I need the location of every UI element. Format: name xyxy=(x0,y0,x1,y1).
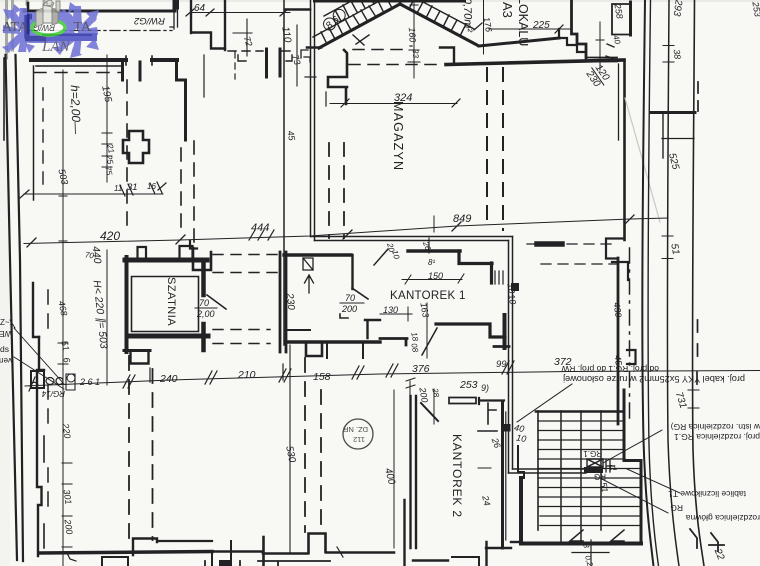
svg-text:51: 51 xyxy=(59,340,71,352)
svg-text:proj. kabel YKY 5x25mm2 w rurz: proj. kabel YKY 5x25mm2 w rurze osłonowe… xyxy=(563,374,745,384)
svg-text:tablice licznikowe T1: tablice licznikowe T1 xyxy=(668,489,746,499)
svg-text:253: 253 xyxy=(459,379,478,391)
svg-text:158: 158 xyxy=(313,371,331,383)
svg-text:Z~1: Z~1 xyxy=(0,318,15,327)
svg-text:293: 293 xyxy=(671,0,684,17)
svg-text:849: 849 xyxy=(453,213,471,225)
svg-text:420: 420 xyxy=(100,229,120,243)
svg-text:KANTOREK 1: KANTOREK 1 xyxy=(390,290,466,302)
svg-text:ATA: ATA xyxy=(2,20,29,35)
svg-text:38: 38 xyxy=(672,49,683,60)
svg-text:70: 70 xyxy=(199,298,209,308)
svg-text:T1: T1 xyxy=(609,463,617,470)
svg-text:0,70m²: 0,70m² xyxy=(461,0,474,33)
svg-text:210: 210 xyxy=(237,369,256,381)
svg-text:430: 430 xyxy=(612,302,624,318)
svg-text:160: 160 xyxy=(407,27,418,43)
svg-text:WEI: WEI xyxy=(0,329,12,338)
svg-text:70: 70 xyxy=(345,293,355,303)
svg-text:10: 10 xyxy=(505,283,517,295)
svg-text:ven: ven xyxy=(0,356,12,365)
svg-text:RG.1: RG.1 xyxy=(583,449,602,458)
svg-text:112: 112 xyxy=(353,435,365,444)
svg-text:70: 70 xyxy=(84,250,95,260)
svg-text:2 6 1: 2 6 1 xyxy=(79,377,100,387)
svg-text:2,00: 2,00 xyxy=(196,309,215,319)
svg-text:130: 130 xyxy=(383,305,398,315)
svg-text:TA: TA xyxy=(74,20,92,35)
svg-text:w istn. rozdzielnica RG): w istn. rozdzielnica RG) xyxy=(671,422,760,432)
svg-text:LAN: LAN xyxy=(41,39,71,55)
svg-text:RW/G2: RW/G2 xyxy=(133,15,165,26)
svg-text:RG/14: RG/14 xyxy=(41,389,65,398)
svg-text:225: 225 xyxy=(532,20,550,31)
svg-text:376: 376 xyxy=(412,363,430,375)
svg-text:230: 230 xyxy=(284,292,297,311)
svg-text:MAGAZYN: MAGAZYN xyxy=(391,101,405,171)
svg-text:KANTOREK 2: KANTOREK 2 xyxy=(450,434,464,518)
svg-text:444: 444 xyxy=(251,222,269,234)
svg-text:ds: ds xyxy=(0,344,9,354)
svg-text:9): 9) xyxy=(481,383,489,393)
svg-text:LOKALU: LOKALU xyxy=(516,0,530,46)
svg-text:301: 301 xyxy=(62,489,74,505)
svg-text:240: 240 xyxy=(159,373,178,385)
svg-text:10: 10 xyxy=(515,433,527,445)
svg-text:11: 11 xyxy=(114,184,122,193)
svg-text:od proj. RG.1 do proj. RW: od proj. RG.1 do proj. RW xyxy=(561,364,659,374)
svg-text:10: 10 xyxy=(506,294,518,306)
svg-text:rozdzielnica główna: rozdzielnica główna xyxy=(686,513,760,523)
svg-text:51: 51 xyxy=(668,243,681,256)
svg-text:51: 51 xyxy=(598,482,610,494)
svg-text:A3: A3 xyxy=(500,2,515,18)
svg-text:RG: RG xyxy=(670,503,683,513)
svg-text:64: 64 xyxy=(194,3,206,14)
svg-text:SZATNIA: SZATNIA xyxy=(165,277,177,326)
svg-text:DZ. NR: DZ. NR xyxy=(342,425,368,434)
svg-text:16: 16 xyxy=(147,182,156,191)
svg-text:200: 200 xyxy=(341,304,357,314)
svg-text:8¹: 8¹ xyxy=(428,258,435,267)
svg-text:150: 150 xyxy=(428,271,443,281)
svg-text:proj. rozdzielnica RG.1: proj. rozdzielnica RG.1 xyxy=(674,432,760,442)
svg-text:33: 33 xyxy=(411,49,421,59)
svg-text:RG: RG xyxy=(594,472,606,481)
svg-text:99: 99 xyxy=(496,359,507,370)
svg-text:31: 31 xyxy=(127,182,138,193)
svg-text:h=2,00—: h=2,00— xyxy=(68,85,84,135)
